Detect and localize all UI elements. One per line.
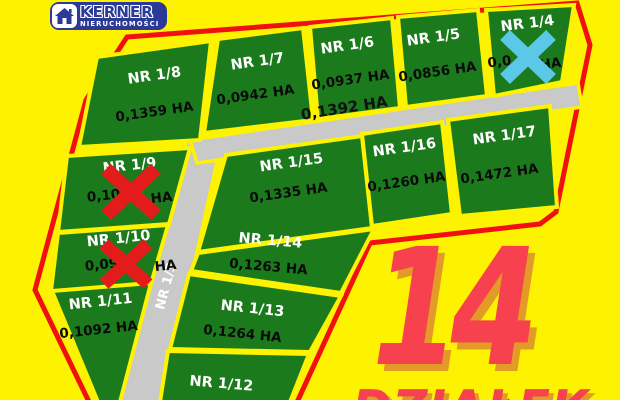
plot-1-8 [79,41,211,147]
kerner-logo: KERNER NIERUCHOMOŚCI [50,2,167,30]
promo-count: 14 [372,228,529,390]
house-icon [52,4,77,28]
logo-subtitle-text: NIERUCHOMOŚCI [80,21,159,28]
plot-1-10-area-suffix: HA [154,257,178,275]
plot-map-flyer: 0,1392 HA NR 1/3 NR 1/8 0,1359 HA NR 1/7… [0,0,620,400]
promo-word: DZIAŁEK [352,384,589,400]
plot-1-17 [448,106,557,216]
plot-1-7 [204,28,313,133]
logo-brand-text: KERNER [80,5,159,20]
